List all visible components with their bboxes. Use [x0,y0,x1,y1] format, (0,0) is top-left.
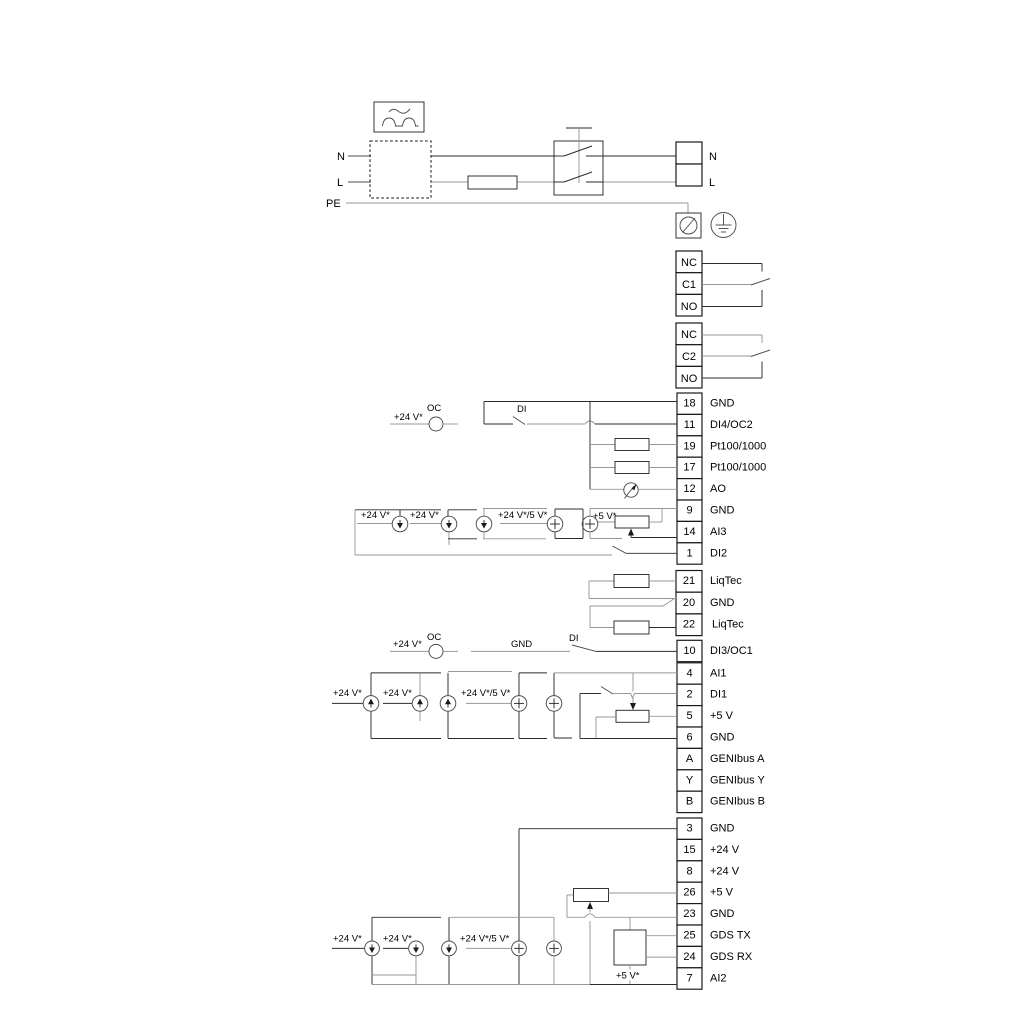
svg-text:+24 V*: +24 V* [383,688,412,699]
svg-text:B: B [686,796,693,808]
svg-text:+24 V*: +24 V* [410,510,439,521]
svg-text:AO: AO [710,483,726,495]
svg-text:6: 6 [686,732,692,744]
svg-text:+5 V: +5 V [710,887,734,899]
svg-text:NO: NO [681,301,698,313]
svg-text:GND: GND [710,732,735,744]
svg-text:8: 8 [686,865,692,877]
svg-text:1: 1 [686,547,692,559]
svg-text:NC: NC [681,329,697,341]
svg-text:21: 21 [683,575,695,587]
svg-text:15: 15 [683,844,695,856]
svg-text:C2: C2 [682,351,696,363]
svg-text:25: 25 [683,930,695,942]
svg-text:18: 18 [683,398,695,410]
svg-text:+24 V*/5 V*: +24 V*/5 V* [498,510,548,521]
svg-text:12: 12 [683,483,695,495]
svg-text:7: 7 [686,972,692,984]
svg-text:+24 V*: +24 V* [333,934,362,945]
svg-text:+24 V*: +24 V* [333,688,362,699]
svg-text:GND: GND [710,505,735,517]
svg-text:+24 V*/5 V*: +24 V*/5 V* [460,934,510,945]
svg-text:N: N [337,151,345,163]
svg-text:24: 24 [683,951,695,963]
svg-text:NC: NC [681,257,697,269]
svg-text:+24 V: +24 V [710,844,740,856]
svg-text:OC: OC [427,403,441,414]
svg-text:AI2: AI2 [710,972,727,984]
svg-text:+24 V*: +24 V* [361,510,390,521]
svg-text:GND: GND [710,398,735,410]
svg-text:AI1: AI1 [710,667,727,679]
svg-text:20: 20 [683,597,695,609]
svg-text:OC: OC [427,632,441,643]
svg-text:+24 V*/5 V*: +24 V*/5 V* [461,688,511,699]
svg-text:LiqTec: LiqTec [712,619,744,631]
svg-text:10: 10 [683,645,695,657]
svg-text:2: 2 [686,689,692,701]
svg-text:14: 14 [683,526,695,538]
svg-text:C1: C1 [682,279,696,291]
svg-text:3: 3 [686,823,692,835]
svg-text:GND: GND [511,639,532,650]
svg-text:DI2: DI2 [710,547,727,559]
svg-text:11: 11 [684,419,695,431]
svg-text:23: 23 [683,908,695,920]
svg-text:GDS TX: GDS TX [710,930,751,942]
svg-text:GENIbus A: GENIbus A [710,753,765,765]
svg-text:+24 V*: +24 V* [383,934,412,945]
svg-text:+24 V: +24 V [710,865,740,877]
svg-text:+5 V: +5 V [710,710,734,722]
svg-text:N: N [709,151,717,163]
svg-text:LiqTec: LiqTec [710,575,742,587]
svg-text:GND: GND [710,908,735,920]
svg-text:DI: DI [517,404,527,415]
svg-text:4: 4 [686,667,692,679]
svg-text:DI: DI [569,633,579,644]
svg-text:PE: PE [326,198,341,210]
svg-text:26: 26 [683,887,695,899]
svg-text:GND: GND [710,823,735,835]
svg-text:+5 V*: +5 V* [593,511,617,522]
svg-text:22: 22 [683,619,695,631]
svg-text:GDS RX: GDS RX [710,951,753,963]
svg-text:19: 19 [683,440,695,452]
svg-text:+24 V*: +24 V* [394,412,423,423]
svg-text:GENIbus B: GENIbus B [710,796,765,808]
svg-text:+24 V*: +24 V* [393,639,422,650]
svg-text:NO: NO [681,373,698,385]
svg-text:Y: Y [686,774,694,786]
svg-text:9: 9 [686,505,692,517]
svg-text:DI1: DI1 [710,689,727,701]
svg-text:DI3/OC1: DI3/OC1 [710,645,753,657]
svg-text:Pt100/1000: Pt100/1000 [710,462,766,474]
svg-text:L: L [337,177,343,189]
svg-text:GENIbus Y: GENIbus Y [710,774,765,786]
svg-text:GND: GND [710,597,735,609]
svg-text:A: A [686,753,694,765]
svg-text:Pt100/1000: Pt100/1000 [710,440,766,452]
svg-text:AI3: AI3 [710,526,727,538]
svg-text:+5 V*: +5 V* [616,971,640,982]
svg-text:5: 5 [686,710,692,722]
svg-text:17: 17 [683,462,695,474]
svg-text:L: L [709,177,715,189]
svg-text:DI4/OC2: DI4/OC2 [710,419,753,431]
